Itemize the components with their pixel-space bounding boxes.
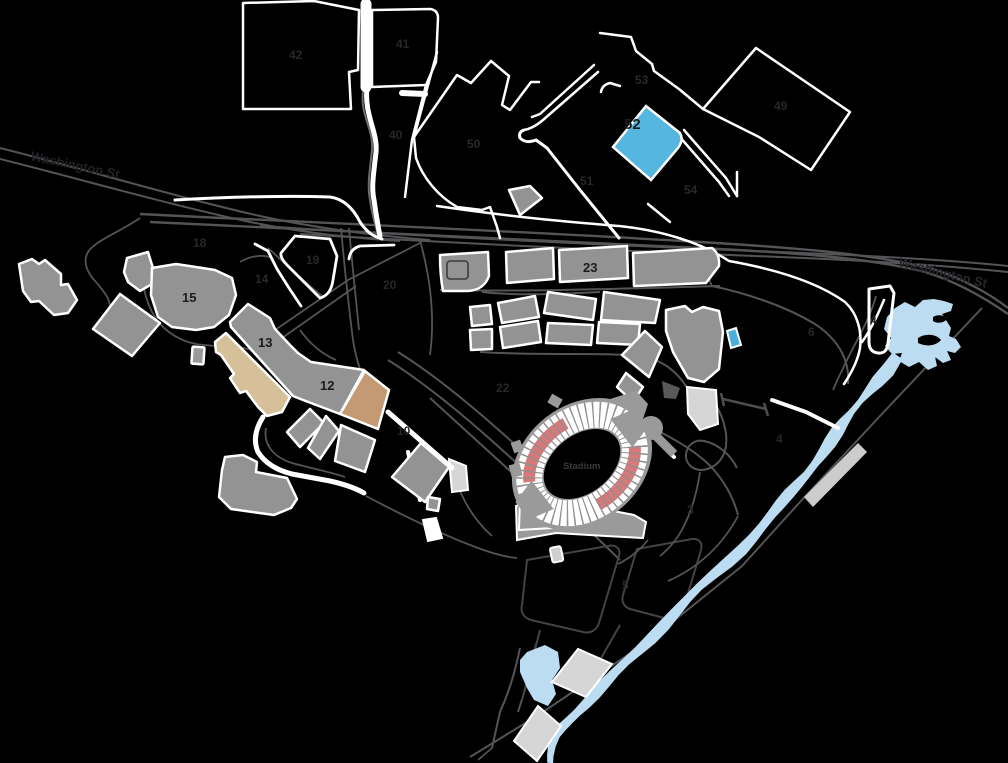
svg-text:18: 18 — [193, 236, 207, 250]
svg-text:54: 54 — [684, 183, 698, 197]
svg-text:19: 19 — [306, 253, 320, 267]
svg-text:4: 4 — [776, 432, 783, 446]
svg-text:14: 14 — [255, 272, 269, 286]
svg-text:41: 41 — [396, 37, 410, 51]
svg-text:40: 40 — [389, 128, 403, 142]
svg-text:20: 20 — [383, 278, 397, 292]
svg-text:52: 52 — [624, 116, 641, 133]
svg-text:23: 23 — [583, 260, 597, 275]
svg-text:10: 10 — [397, 424, 411, 438]
svg-text:22: 22 — [496, 381, 510, 395]
svg-text:49: 49 — [774, 99, 788, 113]
svg-text:15: 15 — [182, 290, 196, 305]
svg-text:13: 13 — [258, 335, 272, 350]
svg-text:42: 42 — [289, 48, 303, 62]
svg-text:4: 4 — [870, 313, 877, 327]
svg-text:53: 53 — [635, 73, 649, 87]
svg-text:51: 51 — [580, 174, 594, 188]
svg-text:12: 12 — [320, 378, 334, 393]
svg-text:Stadium: Stadium — [563, 461, 600, 472]
svg-text:3: 3 — [687, 503, 694, 517]
svg-text:6: 6 — [808, 325, 815, 339]
svg-text:50: 50 — [467, 137, 481, 151]
svg-text:5: 5 — [622, 578, 629, 592]
